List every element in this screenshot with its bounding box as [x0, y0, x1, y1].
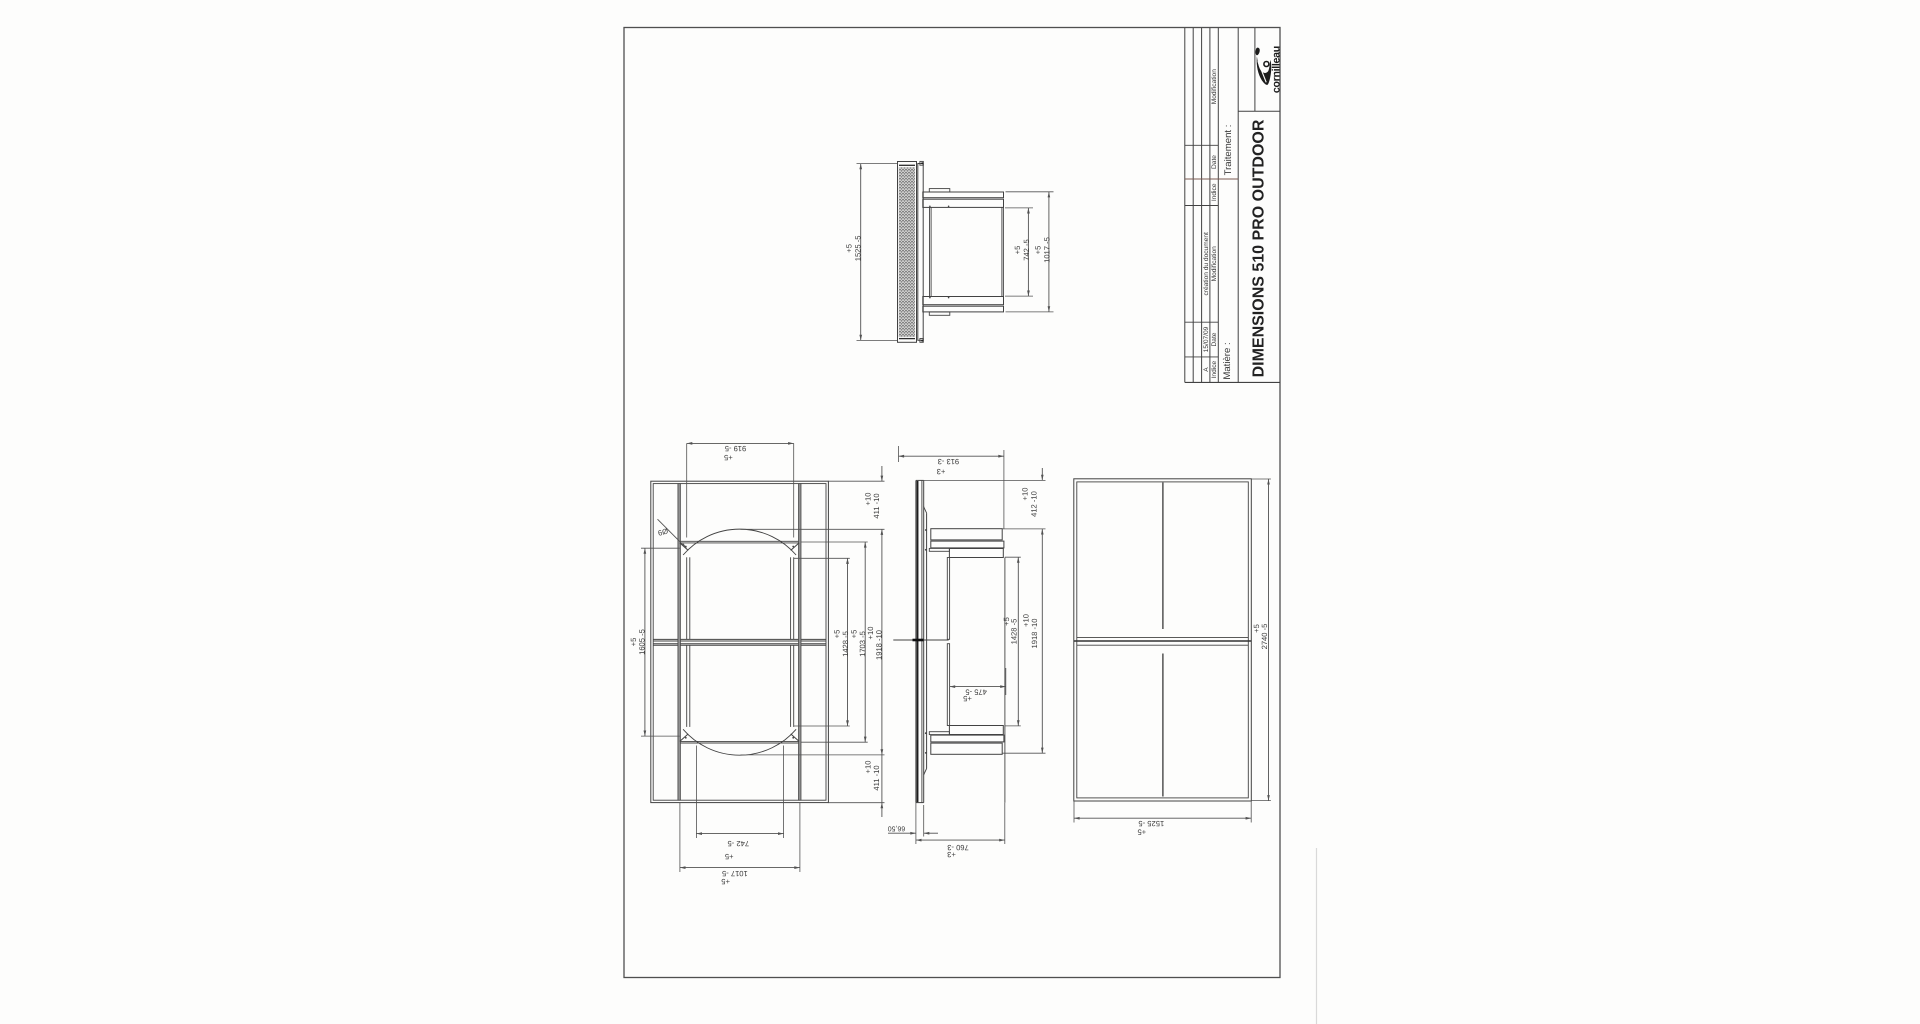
- svg-text:1918 -10: 1918 -10: [875, 630, 884, 660]
- svg-text:Indice: Indice: [1211, 183, 1218, 201]
- svg-text:+5: +5: [849, 630, 858, 639]
- svg-text:cornilleau: cornilleau: [1270, 46, 1282, 93]
- svg-text:DIMENSIONS 510 PRO OUTDOOR: DIMENSIONS 510 PRO OUTDOOR: [1250, 119, 1267, 377]
- svg-text:1918 -10: 1918 -10: [1030, 619, 1039, 649]
- svg-text:+5: +5: [963, 694, 972, 703]
- svg-text:+10: +10: [1021, 488, 1030, 501]
- svg-text:Modification: Modification: [1211, 246, 1218, 282]
- svg-text:+5: +5: [724, 453, 733, 462]
- svg-text:+5: +5: [1013, 246, 1022, 255]
- svg-text:919 -5: 919 -5: [725, 444, 747, 453]
- svg-text:+10: +10: [1021, 614, 1030, 627]
- svg-text:1017 -5: 1017 -5: [722, 869, 748, 878]
- svg-text:913 -3: 913 -3: [938, 457, 960, 466]
- svg-text:Date: Date: [1211, 155, 1218, 169]
- svg-text:742 -5: 742 -5: [1022, 239, 1031, 261]
- svg-text:1605 -5: 1605 -5: [637, 629, 646, 655]
- svg-text:création du document: création du document: [1203, 232, 1210, 296]
- svg-text:742 -5: 742 -5: [728, 839, 750, 848]
- svg-text:+5: +5: [725, 852, 734, 861]
- svg-text:Traitement :: Traitement :: [1223, 125, 1234, 176]
- svg-text:1703 -5: 1703 -5: [858, 631, 867, 657]
- svg-text:+5: +5: [1137, 828, 1146, 837]
- svg-text:1428 -5: 1428 -5: [1009, 619, 1018, 645]
- svg-text:Modification: Modification: [1211, 69, 1218, 105]
- svg-text:1017 -5: 1017 -5: [1042, 237, 1051, 263]
- svg-text:+5: +5: [1033, 246, 1042, 255]
- svg-text:411 -10: 411 -10: [872, 765, 881, 790]
- svg-text:412 -10: 412 -10: [1029, 491, 1038, 517]
- svg-text:+5: +5: [721, 877, 730, 886]
- svg-text:Matière :: Matière :: [1222, 342, 1233, 379]
- svg-text:2740 -5: 2740 -5: [1260, 624, 1269, 650]
- svg-text:Date: Date: [1211, 332, 1218, 346]
- svg-text:+5: +5: [845, 244, 854, 253]
- svg-text:66,50: 66,50: [888, 825, 906, 832]
- svg-text:1525 -5: 1525 -5: [1138, 819, 1164, 828]
- svg-text:+3: +3: [937, 467, 946, 476]
- svg-text:411 -10: 411 -10: [872, 493, 881, 518]
- svg-text:+3: +3: [947, 850, 956, 859]
- svg-text:15/07/09: 15/07/09: [1203, 326, 1210, 352]
- svg-text:A: A: [1203, 367, 1210, 372]
- svg-text:Indice: Indice: [1211, 360, 1218, 378]
- svg-text:1525 -5: 1525 -5: [854, 236, 863, 262]
